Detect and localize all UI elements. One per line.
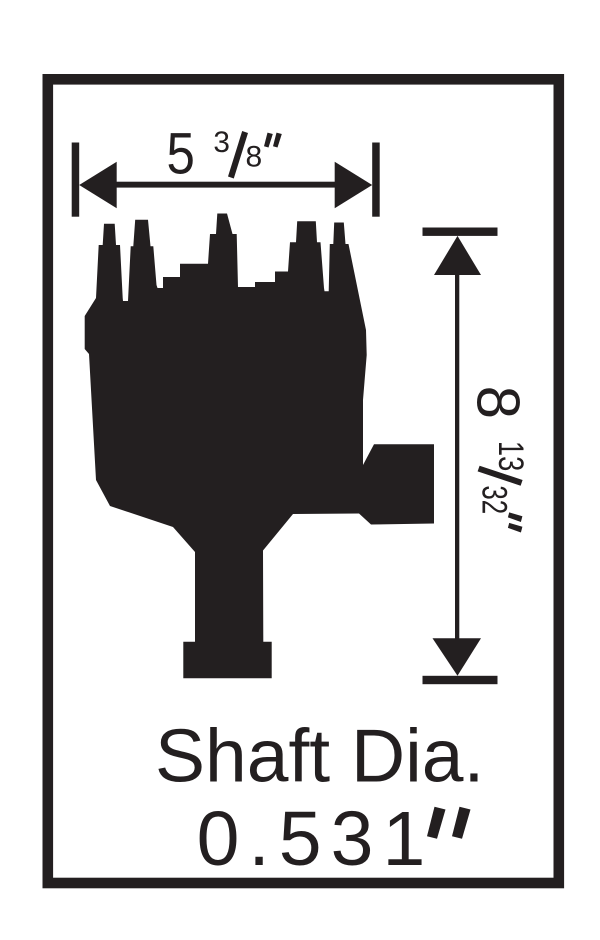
svg-text:8: 8 (465, 386, 532, 419)
svg-text:3: 3 (213, 126, 230, 159)
svg-text:13: 13 (491, 441, 530, 471)
svg-text:32: 32 (475, 485, 515, 514)
svg-text:Shaft Dia.: Shaft Dia. (155, 714, 484, 798)
svg-text:5: 5 (167, 121, 195, 186)
svg-text:8: 8 (246, 141, 263, 174)
svg-text:0.531: 0.531 (197, 796, 435, 882)
